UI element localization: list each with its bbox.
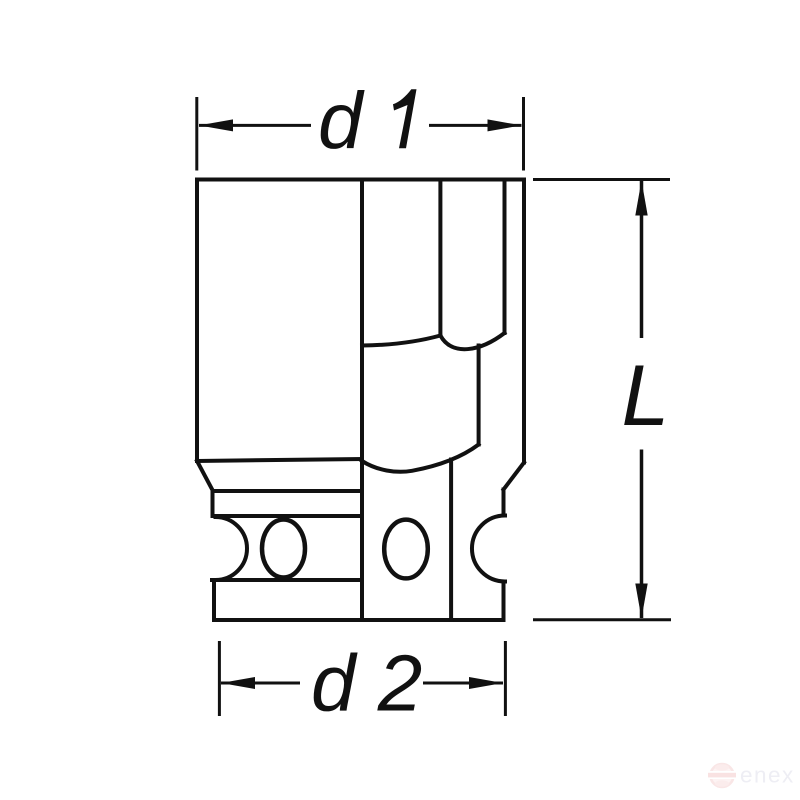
svg-text:enex: enex [740, 763, 795, 788]
svg-text:d 2: d 2 [311, 639, 422, 728]
svg-text:L: L [622, 348, 670, 444]
svg-text:d: d [318, 76, 365, 165]
